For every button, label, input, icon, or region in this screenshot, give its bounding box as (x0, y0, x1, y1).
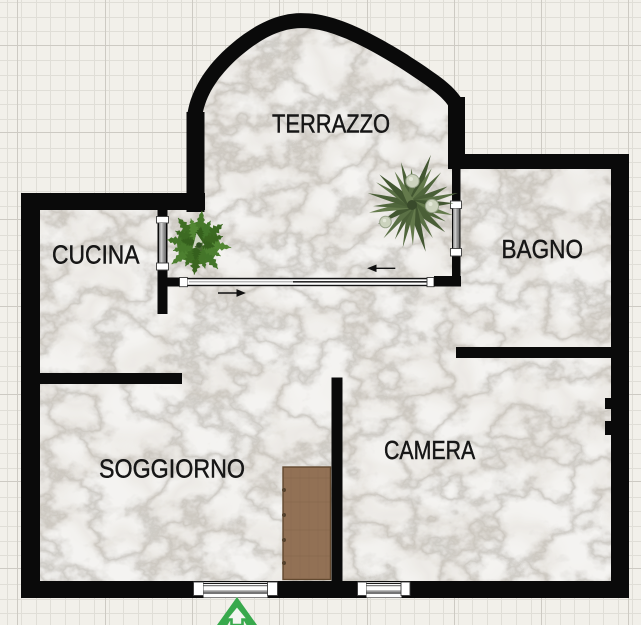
svg-text:SOGGIORNO: SOGGIORNO (99, 455, 245, 483)
svg-text:TERRAZZO: TERRAZZO (272, 111, 390, 139)
svg-text:CAMERA: CAMERA (384, 437, 475, 465)
svg-text:CUCINA: CUCINA (52, 241, 140, 269)
svg-text:BAGNO: BAGNO (502, 236, 584, 264)
